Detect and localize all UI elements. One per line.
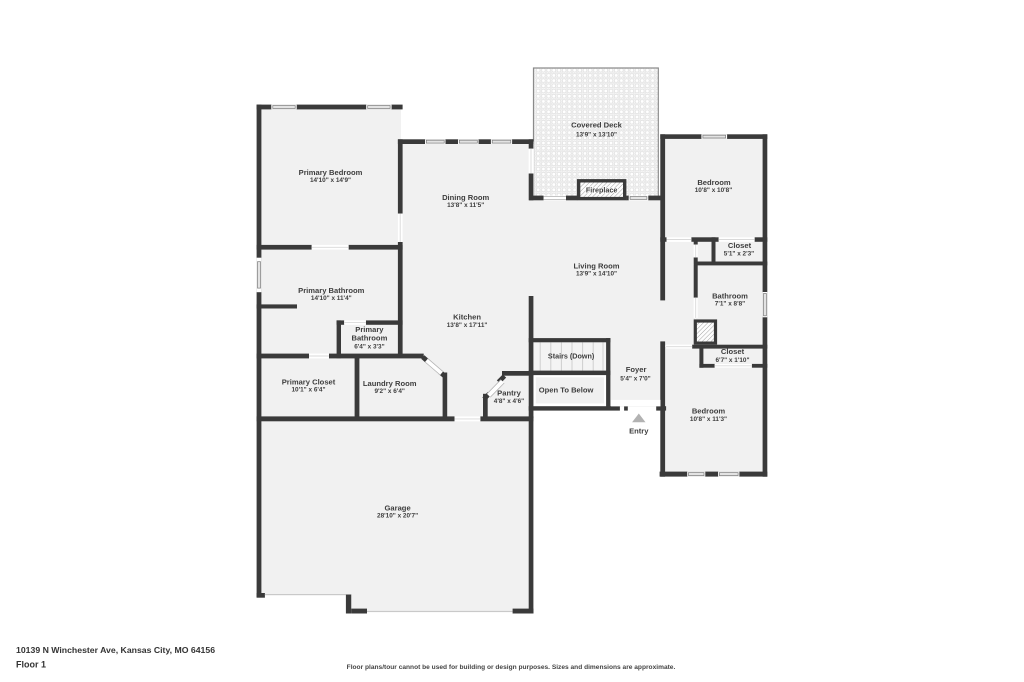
svg-text:14'10" x 14'9": 14'10" x 14'9" [310, 177, 351, 184]
svg-text:Closet: Closet [721, 347, 745, 356]
svg-text:13'8" x 11'5": 13'8" x 11'5" [447, 202, 484, 209]
svg-text:13'9" x 13'10": 13'9" x 13'10" [576, 132, 617, 139]
svg-text:28'10" x 20'7": 28'10" x 20'7" [377, 513, 418, 520]
svg-text:Pantry: Pantry [497, 389, 521, 398]
svg-text:Floor plans/tour cannot be use: Floor plans/tour cannot be used for buil… [347, 664, 676, 671]
svg-text:5'1" x 2'3": 5'1" x 2'3" [724, 250, 754, 257]
svg-text:Fireplace: Fireplace [586, 185, 618, 194]
svg-text:10'1" x 6'4": 10'1" x 6'4" [292, 387, 326, 394]
svg-text:10'8" x 10'8": 10'8" x 10'8" [695, 187, 733, 194]
svg-text:Living Room: Living Room [574, 261, 620, 270]
svg-text:14'10" x 11'4": 14'10" x 11'4" [311, 295, 352, 302]
svg-text:9'2" x 6'4": 9'2" x 6'4" [374, 388, 404, 395]
svg-text:Kitchen: Kitchen [453, 313, 481, 322]
svg-text:Bathroom: Bathroom [712, 291, 748, 300]
svg-text:Bathroom: Bathroom [351, 333, 387, 342]
svg-text:Bedroom: Bedroom [692, 406, 726, 415]
svg-text:6'7" x 1'10": 6'7" x 1'10" [716, 357, 750, 364]
svg-text:Entry: Entry [629, 427, 649, 436]
svg-text:Primary Bathroom: Primary Bathroom [298, 286, 365, 295]
svg-text:Open To Below: Open To Below [539, 386, 594, 395]
svg-text:6'4" x 3'3": 6'4" x 3'3" [354, 343, 384, 350]
svg-text:Garage: Garage [385, 503, 411, 512]
svg-text:13'9" x 14'10": 13'9" x 14'10" [576, 271, 617, 278]
svg-text:Dining Room: Dining Room [442, 193, 489, 202]
svg-text:10'8" x 11'3": 10'8" x 11'3" [690, 416, 727, 423]
svg-text:Primary Closet: Primary Closet [282, 378, 336, 387]
svg-text:Laundry Room: Laundry Room [363, 379, 417, 388]
svg-text:4'8" x 4'6": 4'8" x 4'6" [494, 398, 524, 405]
svg-text:7'1" x 8'8": 7'1" x 8'8" [715, 301, 745, 308]
svg-text:5'4" x 7'0": 5'4" x 7'0" [620, 376, 650, 383]
svg-text:Bedroom: Bedroom [697, 178, 731, 187]
svg-text:Primary Bedroom: Primary Bedroom [299, 168, 363, 177]
svg-text:10139 N Winchester Ave, Kansas: 10139 N Winchester Ave, Kansas City, MO … [16, 645, 215, 655]
svg-text:Stairs (Down): Stairs (Down) [548, 352, 595, 361]
svg-text:Foyer: Foyer [626, 365, 647, 374]
svg-text:Closet: Closet [728, 241, 752, 250]
svg-text:Floor 1: Floor 1 [16, 660, 46, 670]
svg-text:13'8" x 17'11": 13'8" x 17'11" [447, 322, 488, 329]
svg-text:Covered Deck: Covered Deck [571, 121, 622, 130]
